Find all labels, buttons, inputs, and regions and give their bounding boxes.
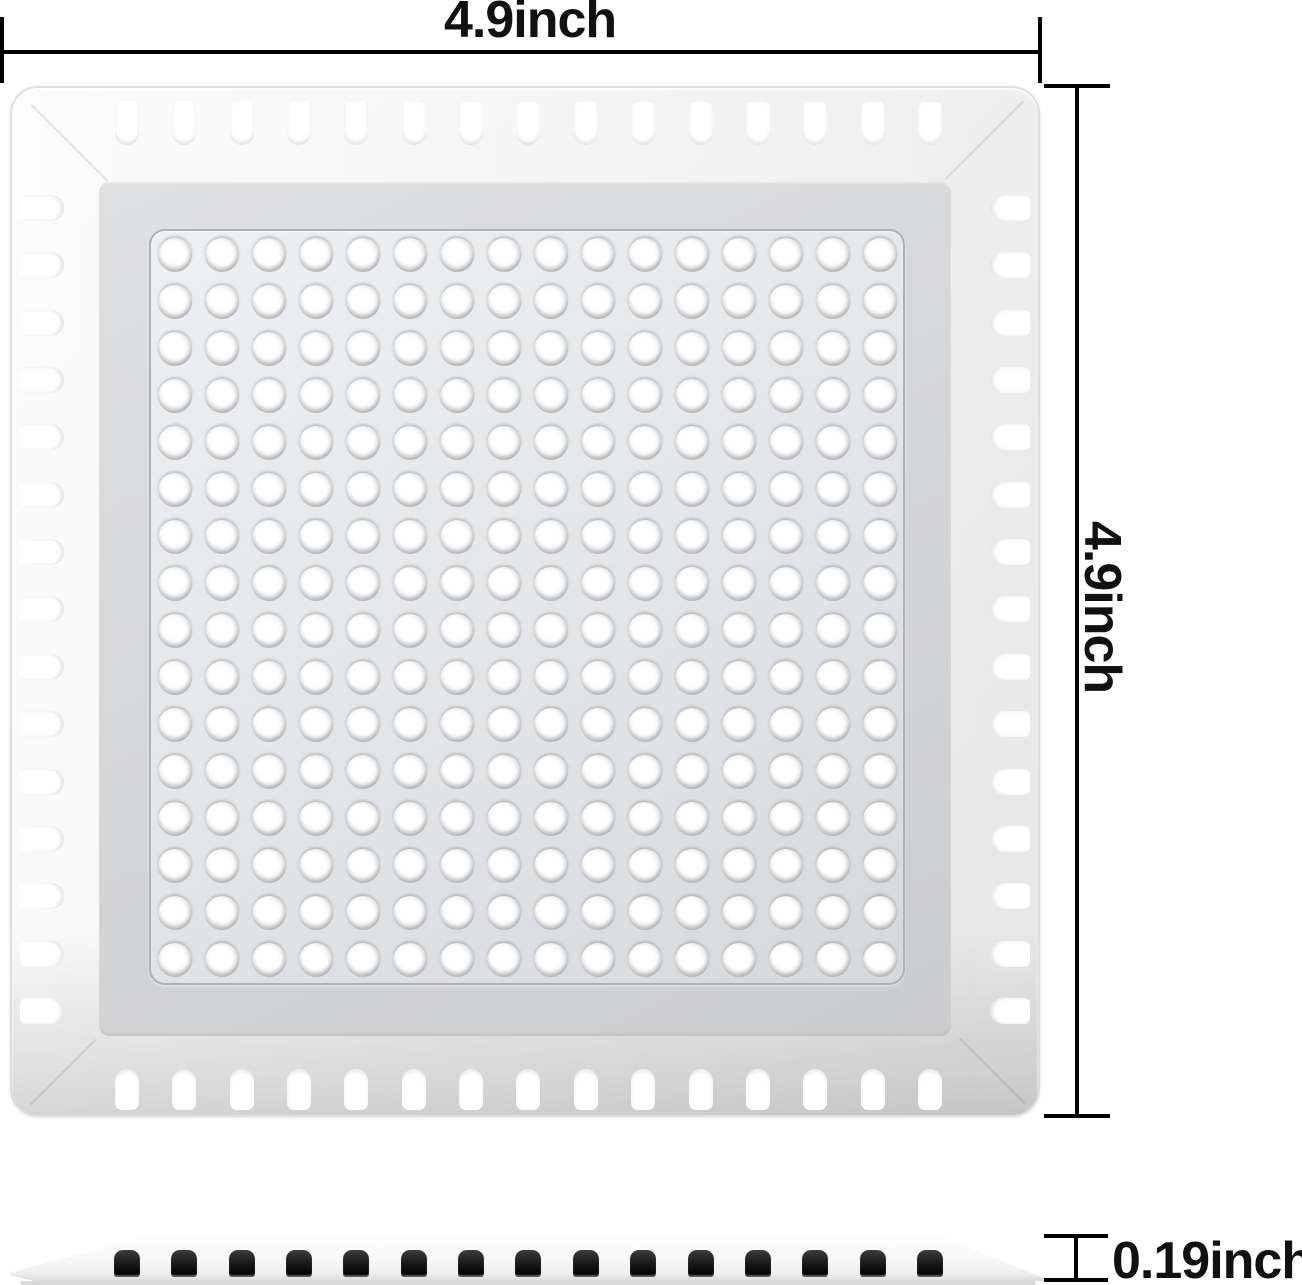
panel-hole (393, 238, 427, 272)
edge-slot-right (990, 711, 1030, 737)
panel-hole (346, 802, 380, 836)
edge-slot-right (990, 941, 1030, 967)
panel-hole (393, 332, 427, 366)
width-dimension-tick-left (0, 17, 4, 83)
panel-hole (863, 426, 897, 460)
panel-hole (205, 755, 239, 789)
panel-hole (675, 755, 709, 789)
panel-hole (722, 285, 756, 319)
edge-slot-right (990, 539, 1030, 565)
edge-slot-top (287, 102, 311, 145)
panel-hole (722, 896, 756, 930)
edge-slot-bottom (918, 1069, 942, 1110)
panel-hole (252, 614, 286, 648)
side-view-slot (802, 1250, 828, 1277)
panel-hole (534, 661, 568, 695)
panel-hole (205, 473, 239, 507)
panel-hole (158, 238, 192, 272)
edge-slot-left (20, 941, 64, 967)
edge-slot-top (402, 102, 426, 145)
panel-hole (816, 896, 850, 930)
panel-hole (158, 661, 192, 695)
panel-hole (816, 426, 850, 460)
panel-hole (863, 802, 897, 836)
panel-hole (299, 896, 333, 930)
side-view-slot (917, 1250, 943, 1277)
edge-slot-bottom (402, 1069, 426, 1110)
panel-hole (487, 661, 521, 695)
panel-hole (675, 802, 709, 836)
edge-slot-left (20, 424, 64, 450)
edge-slot-left (20, 711, 64, 737)
panel-hole (769, 849, 803, 883)
panel-hole (346, 238, 380, 272)
edge-slot-left (20, 826, 64, 852)
panel-hole (158, 849, 192, 883)
panel-hole (816, 520, 850, 554)
panel-hole (769, 708, 803, 742)
width-dimension-tick-right (1038, 17, 1042, 83)
panel-hole (393, 755, 427, 789)
panel-hole (675, 614, 709, 648)
panel-hole (252, 238, 286, 272)
panel-hole (581, 802, 615, 836)
panel-hole (769, 426, 803, 460)
panel-hole (299, 708, 333, 742)
panel-hole (769, 520, 803, 554)
panel-hole (863, 849, 897, 883)
edge-slot-left (20, 596, 64, 622)
panel-hole (158, 802, 192, 836)
panel-hole (205, 426, 239, 460)
panel-hole (252, 943, 286, 977)
panel-hole (440, 520, 474, 554)
width-dimension-label: 4.9inch (444, 0, 616, 51)
side-view-slot (229, 1250, 255, 1277)
panel-hole (628, 755, 662, 789)
panel-hole (816, 379, 850, 413)
side-view-slot (860, 1250, 886, 1277)
panel-hole (393, 567, 427, 601)
panel-hole (534, 943, 568, 977)
panel-hole (534, 567, 568, 601)
width-dimension-line (2, 50, 1042, 54)
panel-hole (346, 943, 380, 977)
panel-hole (346, 661, 380, 695)
panel-hole (816, 755, 850, 789)
panel-hole (769, 332, 803, 366)
panel-hole (158, 943, 192, 977)
panel-hole (722, 238, 756, 272)
edge-slot-top (631, 102, 655, 145)
panel-hole (722, 379, 756, 413)
panel-hole (581, 520, 615, 554)
panel-hole (346, 849, 380, 883)
panel-hole (675, 567, 709, 601)
panel-hole (769, 755, 803, 789)
panel-hole (863, 473, 897, 507)
product-dimension-diagram: 4.9inch 4.9inch 0.19inch (0, 0, 1302, 1285)
panel-hole (863, 520, 897, 554)
panel-hole (487, 802, 521, 836)
panel-hole (440, 285, 474, 319)
panel-hole (158, 520, 192, 554)
edge-slot-top (115, 102, 139, 145)
panel-hole (205, 379, 239, 413)
panel-hole (158, 473, 192, 507)
edge-slot-bottom (746, 1069, 770, 1110)
panel-hole (158, 332, 192, 366)
panel-hole (252, 755, 286, 789)
panel-hole (628, 567, 662, 601)
edge-slot-bottom (803, 1069, 827, 1110)
edge-slot-top (344, 102, 368, 145)
panel-hole (252, 896, 286, 930)
panel-hole (581, 332, 615, 366)
panel-hole (299, 661, 333, 695)
panel-hole (440, 614, 474, 648)
panel-hole (581, 708, 615, 742)
panel-hole (346, 379, 380, 413)
panel-hole (440, 802, 474, 836)
corner-chamfer-line-top-left (31, 104, 109, 182)
panel-hole (534, 285, 568, 319)
panel-hole (487, 896, 521, 930)
panel-hole (769, 473, 803, 507)
edge-slot-top (746, 102, 770, 145)
panel-hole (299, 849, 333, 883)
panel-hole (581, 896, 615, 930)
panel-hole (628, 520, 662, 554)
panel-hole (205, 661, 239, 695)
panel-hole (252, 285, 286, 319)
edge-slot-top (918, 102, 942, 145)
panel-hole (440, 661, 474, 695)
panel-hole (299, 473, 333, 507)
panel-hole (675, 238, 709, 272)
panel-hole (863, 379, 897, 413)
panel-hole (158, 567, 192, 601)
panel-hole (628, 614, 662, 648)
panel-hole (487, 473, 521, 507)
panel-hole (393, 426, 427, 460)
panel-hole (581, 473, 615, 507)
side-view-slot (171, 1250, 197, 1277)
panel-hole (769, 238, 803, 272)
panel-hole (722, 567, 756, 601)
panel-hole (769, 943, 803, 977)
edge-slot-bottom (115, 1069, 139, 1110)
panel-hole (722, 426, 756, 460)
side-view-slot (286, 1250, 312, 1277)
panel-hole (769, 614, 803, 648)
panel-hole (299, 802, 333, 836)
panel-hole (722, 332, 756, 366)
plate-front-view (10, 86, 1040, 1117)
panel-hole (252, 379, 286, 413)
edge-slot-bottom (574, 1069, 598, 1110)
panel-hole (675, 426, 709, 460)
edge-slot-left (20, 539, 64, 565)
panel-hole (628, 896, 662, 930)
panel-hole (816, 238, 850, 272)
side-view-slot (343, 1250, 369, 1277)
panel-hole (863, 567, 897, 601)
thickness-dimension-line (1074, 1236, 1078, 1282)
hole-grid (151, 231, 903, 983)
panel-hole (722, 661, 756, 695)
edge-slot-top (861, 102, 885, 145)
panel-hole (863, 661, 897, 695)
panel-hole (205, 802, 239, 836)
panel-hole (252, 849, 286, 883)
panel-hole (205, 614, 239, 648)
panel-hole (346, 614, 380, 648)
panel-hole (628, 661, 662, 695)
panel-hole (722, 802, 756, 836)
panel-hole (252, 520, 286, 554)
edge-slot-bottom (861, 1069, 885, 1110)
panel-hole (628, 238, 662, 272)
panel-hole (816, 802, 850, 836)
panel-hole (628, 426, 662, 460)
edge-slot-left (20, 482, 64, 508)
edge-slot-left (20, 252, 64, 278)
panel-hole (722, 755, 756, 789)
panel-hole (534, 896, 568, 930)
panel-hole (393, 285, 427, 319)
panel-hole (816, 473, 850, 507)
panel-hole (863, 896, 897, 930)
panel-hole (440, 238, 474, 272)
panel-hole (346, 708, 380, 742)
edge-slot-left (20, 195, 64, 221)
panel-hole (675, 379, 709, 413)
panel-hole (675, 943, 709, 977)
height-dimension-tick-bottom (1044, 1114, 1110, 1118)
panel-hole (299, 238, 333, 272)
panel-hole (581, 285, 615, 319)
panel-hole (440, 473, 474, 507)
side-view-slot (458, 1250, 484, 1277)
panel-hole (534, 473, 568, 507)
edge-slot-right (990, 482, 1030, 508)
panel-hole (863, 708, 897, 742)
panel-hole (346, 896, 380, 930)
panel-hole (816, 332, 850, 366)
side-view-slot (573, 1250, 599, 1277)
panel-hole (816, 661, 850, 695)
panel-hole (440, 426, 474, 460)
panel-hole (487, 426, 521, 460)
panel-hole (534, 426, 568, 460)
panel-hole (205, 238, 239, 272)
edge-slot-bottom (172, 1069, 196, 1110)
panel-hole (487, 238, 521, 272)
panel-hole (722, 708, 756, 742)
edge-slot-bottom (287, 1069, 311, 1110)
panel-hole (205, 332, 239, 366)
panel-hole (393, 614, 427, 648)
panel-hole (487, 614, 521, 648)
panel-hole (346, 755, 380, 789)
panel-hole (299, 943, 333, 977)
panel-hole (581, 426, 615, 460)
panel-hole (205, 708, 239, 742)
panel-hole (346, 285, 380, 319)
edge-slot-right (990, 252, 1030, 278)
panel-hole (628, 332, 662, 366)
edge-slot-left (20, 654, 64, 680)
plate-side-view (8, 1233, 1046, 1285)
panel-hole (158, 614, 192, 648)
panel-hole (299, 379, 333, 413)
edge-slot-bottom (689, 1069, 713, 1110)
side-view-slot (745, 1250, 771, 1277)
side-view-slot (630, 1250, 656, 1277)
panel-hole (581, 943, 615, 977)
panel-hole (205, 520, 239, 554)
panel-hole (299, 332, 333, 366)
panel-hole (722, 520, 756, 554)
panel-hole (863, 238, 897, 272)
panel-hole (628, 849, 662, 883)
panel-hole (769, 567, 803, 601)
edge-slot-top (574, 102, 598, 145)
perforated-panel (149, 229, 905, 985)
panel-hole (487, 520, 521, 554)
panel-hole (534, 520, 568, 554)
panel-hole (816, 285, 850, 319)
side-view-slot (688, 1250, 714, 1277)
thickness-dimension-label: 0.19inch (1112, 1232, 1302, 1285)
panel-hole (769, 285, 803, 319)
edge-slot-right (990, 998, 1030, 1024)
panel-hole (816, 708, 850, 742)
panel-hole (393, 473, 427, 507)
edge-slot-top (172, 102, 196, 145)
panel-hole (252, 708, 286, 742)
panel-hole (628, 708, 662, 742)
panel-hole (487, 849, 521, 883)
panel-hole (205, 849, 239, 883)
panel-hole (722, 614, 756, 648)
panel-hole (675, 520, 709, 554)
panel-hole (534, 379, 568, 413)
edge-slot-bottom (344, 1069, 368, 1110)
panel-hole (581, 755, 615, 789)
panel-hole (628, 802, 662, 836)
edge-slot-top (689, 102, 713, 145)
panel-hole (675, 661, 709, 695)
edge-slot-left (20, 310, 64, 336)
panel-hole (346, 332, 380, 366)
panel-hole (487, 755, 521, 789)
panel-hole (440, 896, 474, 930)
panel-hole (581, 379, 615, 413)
panel-hole (158, 426, 192, 460)
panel-hole (440, 755, 474, 789)
panel-hole (675, 849, 709, 883)
panel-hole (675, 473, 709, 507)
edge-slot-bottom (230, 1069, 254, 1110)
panel-hole (393, 520, 427, 554)
panel-hole (769, 802, 803, 836)
thickness-dimension-tick-top (1044, 1234, 1108, 1238)
panel-hole (816, 614, 850, 648)
panel-hole (252, 802, 286, 836)
panel-hole (440, 332, 474, 366)
panel-hole (628, 285, 662, 319)
edge-slot-left (20, 883, 64, 909)
panel-hole (722, 473, 756, 507)
panel-hole (440, 943, 474, 977)
panel-hole (816, 943, 850, 977)
edge-slot-right (990, 769, 1030, 795)
panel-hole (534, 802, 568, 836)
edge-slot-bottom (631, 1069, 655, 1110)
panel-hole (581, 849, 615, 883)
panel-hole (534, 708, 568, 742)
edge-slot-right (990, 310, 1030, 336)
edge-slot-right (990, 654, 1030, 680)
panel-hole (487, 332, 521, 366)
panel-hole (252, 473, 286, 507)
edge-slot-top (516, 102, 540, 145)
panel-hole (534, 238, 568, 272)
panel-hole (158, 379, 192, 413)
panel-hole (299, 285, 333, 319)
edge-slot-top (230, 102, 254, 145)
corner-chamfer-line-bottom-right (959, 1038, 1025, 1104)
panel-hole (158, 755, 192, 789)
edge-slot-right (990, 596, 1030, 622)
panel-hole (393, 802, 427, 836)
panel-hole (863, 755, 897, 789)
panel-hole (675, 896, 709, 930)
panel-hole (205, 567, 239, 601)
panel-hole (769, 896, 803, 930)
panel-hole (440, 379, 474, 413)
side-view-slot (401, 1250, 427, 1277)
panel-hole (769, 379, 803, 413)
panel-hole (863, 332, 897, 366)
panel-hole (863, 285, 897, 319)
panel-hole (534, 614, 568, 648)
panel-hole (299, 755, 333, 789)
corner-chamfer-line-top-right (945, 101, 1024, 180)
panel-hole (346, 520, 380, 554)
panel-hole (534, 849, 568, 883)
panel-hole (769, 661, 803, 695)
panel-hole (675, 285, 709, 319)
side-view-body (8, 1233, 1046, 1285)
panel-hole (393, 943, 427, 977)
panel-hole (863, 943, 897, 977)
panel-hole (487, 285, 521, 319)
panel-hole (440, 708, 474, 742)
panel-hole (675, 708, 709, 742)
panel-hole (205, 943, 239, 977)
panel-hole (346, 426, 380, 460)
edge-slot-bottom (516, 1069, 540, 1110)
panel-hole (252, 661, 286, 695)
thickness-dimension-tick-bottom (1044, 1278, 1108, 1282)
panel-hole (393, 379, 427, 413)
edge-slot-right (990, 826, 1030, 852)
side-view-slot (515, 1250, 541, 1277)
panel-hole (393, 896, 427, 930)
